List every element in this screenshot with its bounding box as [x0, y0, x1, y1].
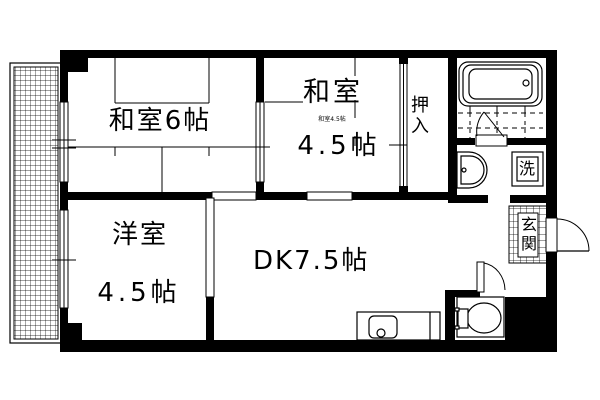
bathtub-icon: [459, 62, 542, 106]
balcony-hatch: [10, 63, 62, 343]
toilet-icon: [455, 297, 504, 337]
room-label-entrance: 玄関: [519, 216, 535, 254]
room-label-japanese45-note: 和室4.5帖: [318, 117, 346, 123]
kitchen-sink-icon: [357, 312, 440, 340]
room-label-japanese6: 和室6帖: [109, 108, 212, 134]
bathroom-door-swing-icon: [476, 112, 507, 146]
floor-plan-drawing: [0, 0, 600, 400]
room-label-western45-size: 4.5帖: [97, 280, 180, 306]
room-label-japanese45-size: 4.5帖: [297, 133, 380, 159]
room-label-closet: 押入: [409, 95, 427, 137]
room-label-laundry: 洗: [519, 161, 535, 177]
room-label-dk: DK7.5帖: [253, 248, 369, 274]
room-label-western45-name: 洋室: [112, 222, 168, 248]
washbasin-icon: [457, 152, 487, 188]
entrance-door-swing-icon: [546, 218, 589, 252]
room-label-japanese45-name: 和室: [303, 79, 363, 106]
floor-plan: 和室6帖 和室 和室4.5帖 4.5帖 洋室 4.5帖 DK7.5帖 押入 玄関…: [0, 0, 600, 400]
toilet-door-swing-icon: [477, 262, 505, 297]
